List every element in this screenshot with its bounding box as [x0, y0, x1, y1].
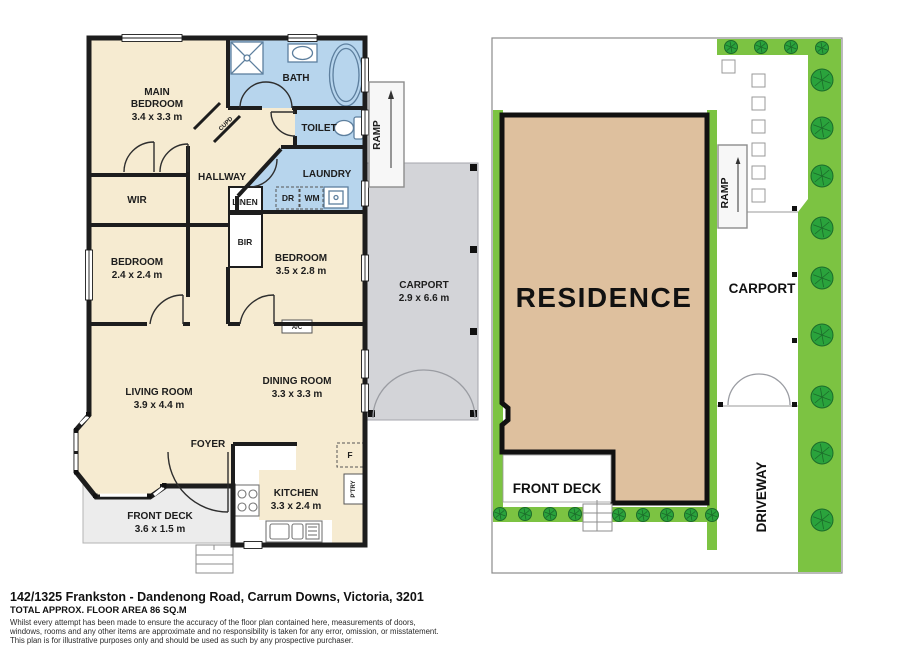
- site-plan: RESIDENCE CARPORT DRIVEWAY FRONT DECK RA…: [492, 38, 842, 573]
- label-main-bedroom-2: BEDROOM: [131, 99, 183, 110]
- tree-icon: [494, 508, 507, 521]
- tree-icon: [811, 69, 833, 91]
- carport-slab: [367, 163, 478, 420]
- label-site-residence: RESIDENCE: [516, 282, 693, 313]
- label-hallway: HALLWAY: [198, 172, 246, 183]
- label-pantry: P'TRY: [351, 480, 357, 497]
- label-bedroom3: BEDROOM: [275, 253, 327, 264]
- label-dining-dims: 3.3 x 3.3 m: [272, 389, 323, 400]
- address-text: 142/1325 Frankston - Dandenong Road, Car…: [10, 590, 424, 604]
- tree-icon: [569, 508, 582, 521]
- tree-icon: [544, 508, 557, 521]
- laundry-trough: [324, 187, 348, 208]
- tree-icon: [811, 165, 833, 187]
- label-dryer: DR: [282, 193, 294, 203]
- floorplan-page: MAIN BEDROOM 3.4 x 3.3 m WIR BATH TOILET…: [0, 0, 918, 650]
- label-wir: WIR: [127, 195, 147, 206]
- label-living: LIVING ROOM: [125, 387, 192, 398]
- label-front-deck-dims: 3.6 x 1.5 m: [135, 524, 186, 535]
- shower: [231, 42, 263, 74]
- label-bedroom2: BEDROOM: [111, 257, 163, 268]
- tree-icon: [661, 509, 674, 522]
- label-bir: BIR: [238, 237, 253, 247]
- label-linen: LINEN: [232, 197, 258, 207]
- tree-icon: [811, 267, 833, 289]
- floorplan-image: MAIN BEDROOM 3.4 x 3.3 m WIR BATH TOILET…: [0, 0, 918, 650]
- label-dining: DINING ROOM: [263, 376, 332, 387]
- label-ramp: RAMP: [372, 120, 383, 150]
- label-bedroom3-dims: 3.5 x 2.8 m: [276, 266, 327, 277]
- bath-sink: [288, 44, 317, 62]
- tree-icon: [785, 41, 798, 54]
- tree-icon: [706, 509, 719, 522]
- cooktop: [235, 485, 259, 516]
- label-site-driveway: DRIVEWAY: [754, 462, 769, 533]
- label-toilet: TOILET: [301, 123, 336, 134]
- tree-icon: [811, 442, 833, 464]
- label-front-deck: FRONT DECK: [127, 511, 193, 522]
- tree-icon: [811, 217, 833, 239]
- tree-icon: [613, 509, 626, 522]
- label-washer: WM: [304, 193, 319, 203]
- label-bedroom2-dims: 2.4 x 2.4 m: [112, 270, 163, 281]
- disclaimer-line-2: windows, rooms and any other items are a…: [9, 627, 439, 636]
- tree-icon: [811, 324, 833, 346]
- tree-icon: [755, 41, 768, 54]
- label-kitchen: KITCHEN: [274, 488, 318, 499]
- label-main-bedroom-1: MAIN: [144, 87, 170, 98]
- tree-icon: [811, 117, 833, 139]
- tree-icon: [811, 386, 833, 408]
- label-site-ramp: RAMP: [719, 178, 731, 209]
- label-laundry: LAUNDRY: [303, 169, 352, 180]
- tree-icon: [725, 41, 738, 54]
- kitchen-sink: [266, 521, 322, 542]
- tree-icon: [637, 509, 650, 522]
- label-ac: A/C: [292, 325, 303, 331]
- floor-area-text: TOTAL APPROX. FLOOR AREA 86 SQ.M: [10, 605, 187, 615]
- label-carport: CARPORT: [399, 280, 448, 291]
- tree-icon: [685, 509, 698, 522]
- site-steps: [583, 500, 612, 531]
- label-site-carport: CARPORT: [729, 281, 797, 296]
- label-carport-dims: 2.9 x 6.6 m: [399, 293, 450, 304]
- entry-steps: [196, 545, 233, 573]
- disclaimer-line-3: This plan is for illustrative purposes o…: [10, 636, 353, 645]
- tree-icon: [811, 509, 833, 531]
- label-main-bedroom-dims: 3.4 x 3.3 m: [132, 112, 183, 123]
- floor-plan: MAIN BEDROOM 3.4 x 3.3 m WIR BATH TOILET…: [74, 35, 478, 574]
- label-site-front-deck: FRONT DECK: [513, 481, 602, 496]
- label-fridge: F: [347, 450, 352, 460]
- disclaimer-line-1: Whilst every attempt has been made to en…: [10, 618, 416, 627]
- label-living-dims: 3.9 x 4.4 m: [134, 400, 185, 411]
- tree-icon: [519, 508, 532, 521]
- footer: 142/1325 Frankston - Dandenong Road, Car…: [9, 590, 439, 645]
- label-kitchen-dims: 3.3 x 2.4 m: [271, 501, 322, 512]
- tree-icon: [816, 42, 829, 55]
- label-foyer: FOYER: [191, 439, 226, 450]
- label-bath: BATH: [282, 73, 309, 84]
